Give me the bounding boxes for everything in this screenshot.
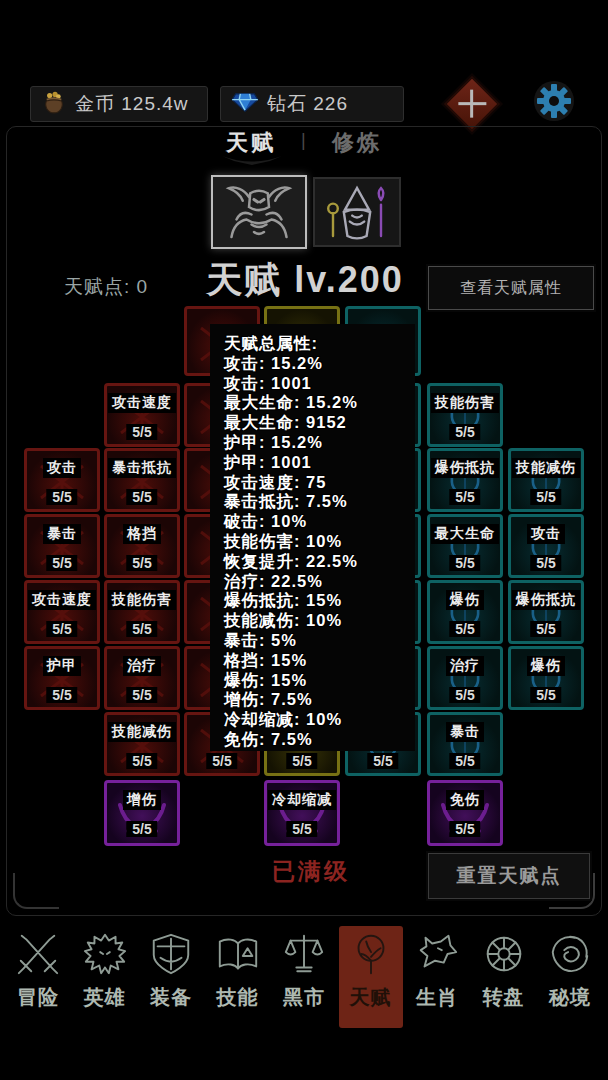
node-level: 5/5 — [449, 555, 480, 571]
node-level: 5/5 — [449, 424, 480, 440]
node-label: 爆伤抵抗 — [512, 590, 580, 610]
nav-item-装备[interactable]: 装备 — [139, 926, 203, 1028]
nav-item-label: 天赋 — [350, 984, 392, 1011]
node-level: 5/5 — [449, 621, 480, 637]
talent-node[interactable]: 技能伤害5/5 — [427, 383, 503, 447]
talent-node[interactable]: 爆伤5/5 — [508, 646, 584, 710]
max-level-text: 已满级 — [206, 856, 416, 887]
popup-stat-line: 攻击: 1001 — [224, 374, 415, 394]
popup-stat-line: 攻击速度: 75 — [224, 473, 415, 493]
popup-stat-line: 技能伤害: 10% — [224, 532, 415, 552]
talent-node[interactable]: 攻击5/5 — [24, 448, 100, 512]
talent-node[interactable]: 增伤5/5 — [104, 780, 180, 846]
node-level: 5/5 — [286, 821, 317, 837]
node-level: 5/5 — [449, 489, 480, 505]
node-level: 5/5 — [46, 687, 77, 703]
node-level: 5/5 — [206, 753, 237, 769]
popup-stat-line: 最大生命: 9152 — [224, 413, 415, 433]
node-level: 5/5 — [126, 424, 157, 440]
talent-node[interactable]: 护甲5/5 — [24, 646, 100, 710]
node-level: 5/5 — [286, 753, 317, 769]
node-level: 5/5 — [367, 753, 398, 769]
node-label: 治疗 — [446, 656, 484, 676]
talent-node[interactable]: 格挡5/5 — [104, 514, 180, 578]
popup-stat-line: 恢复提升: 22.5% — [224, 552, 415, 572]
nav-item-label: 冒险 — [17, 984, 59, 1011]
popup-stat-line: 格挡: 15% — [224, 651, 415, 671]
nav-item-技能[interactable]: 技能 — [206, 926, 270, 1028]
node-level: 5/5 — [46, 621, 77, 637]
node-label: 技能伤害 — [431, 393, 499, 413]
talent-node[interactable]: 暴击5/5 — [427, 712, 503, 776]
nav-item-label: 转盘 — [483, 984, 525, 1011]
nav-item-label: 生肖 — [416, 984, 458, 1011]
node-label: 暴击 — [446, 722, 484, 742]
node-label: 攻击 — [43, 458, 81, 478]
wolf-icon — [413, 930, 461, 978]
node-label: 攻击 — [527, 524, 565, 544]
node-label: 暴击抵抗 — [108, 458, 176, 478]
node-label: 最大生命 — [431, 524, 499, 544]
node-label: 攻击速度 — [108, 393, 176, 413]
spellbook-icon — [214, 930, 262, 978]
talent-node[interactable]: 技能减伤5/5 — [508, 448, 584, 512]
popup-stat-line: 增伤: 7.5% — [224, 690, 415, 710]
node-label: 爆伤 — [446, 590, 484, 610]
nav-item-label: 技能 — [217, 984, 259, 1011]
node-label: 技能减伤 — [512, 458, 580, 478]
talent-node[interactable]: 免伤5/5 — [427, 780, 503, 846]
bottom-nav: 冒险英雄装备技能黑市天赋生肖转盘秘境 — [0, 926, 608, 1034]
talent-node[interactable]: 暴击5/5 — [24, 514, 100, 578]
popup-stat-line: 护甲: 15.2% — [224, 433, 415, 453]
nav-item-生肖[interactable]: 生肖 — [405, 926, 469, 1028]
nav-item-黑市[interactable]: 黑市 — [272, 926, 336, 1028]
talent-attrs-popup[interactable]: 天赋总属性:攻击: 15.2%攻击: 1001最大生命: 15.2%最大生命: … — [210, 324, 415, 751]
popup-stat-line: 爆伤抵抗: 15% — [224, 591, 415, 611]
nav-item-冒险[interactable]: 冒险 — [6, 926, 70, 1028]
popup-stat-line: 技能减伤: 10% — [224, 611, 415, 631]
vortex-icon — [546, 930, 594, 978]
nav-item-转盘[interactable]: 转盘 — [472, 926, 536, 1028]
popup-stat-line: 最大生命: 15.2% — [224, 393, 415, 413]
popup-stat-line: 破击: 10% — [224, 512, 415, 532]
node-level: 5/5 — [449, 753, 480, 769]
node-label: 暴击 — [43, 524, 81, 544]
talent-node[interactable]: 攻击5/5 — [508, 514, 584, 578]
popup-stat-line: 治疗: 22.5% — [224, 572, 415, 592]
talent-node[interactable]: 治疗5/5 — [104, 646, 180, 710]
node-label: 技能伤害 — [108, 590, 176, 610]
node-label: 爆伤抵抗 — [431, 458, 499, 478]
nav-item-秘境[interactable]: 秘境 — [538, 926, 602, 1028]
nav-item-英雄[interactable]: 英雄 — [73, 926, 137, 1028]
nav-item-label: 黑市 — [283, 984, 325, 1011]
node-level: 5/5 — [126, 555, 157, 571]
popup-stat-line: 冷却缩减: 10% — [224, 710, 415, 730]
nav-item-label: 秘境 — [549, 984, 591, 1011]
talent-node[interactable]: 爆伤抵抗5/5 — [508, 580, 584, 644]
shield-icon — [147, 930, 195, 978]
node-level: 5/5 — [126, 753, 157, 769]
node-label: 冷却缩减 — [268, 790, 336, 810]
node-level: 5/5 — [530, 555, 561, 571]
talent-node[interactable]: 冷却缩减5/5 — [264, 780, 340, 846]
node-level: 5/5 — [530, 489, 561, 505]
popup-stat-line: 爆伤: 15% — [224, 671, 415, 691]
node-label: 护甲 — [43, 656, 81, 676]
talent-node[interactable]: 技能伤害5/5 — [104, 580, 180, 644]
node-level: 5/5 — [126, 489, 157, 505]
node-level: 5/5 — [126, 821, 157, 837]
talent-node[interactable]: 爆伤5/5 — [427, 580, 503, 644]
popup-stat-line: 天赋总属性: — [224, 334, 415, 354]
talent-node[interactable]: 最大生命5/5 — [427, 514, 503, 578]
node-label: 免伤 — [446, 790, 484, 810]
node-label: 治疗 — [123, 656, 161, 676]
dragon-head-icon — [81, 930, 129, 978]
popup-stat-line: 护甲: 1001 — [224, 453, 415, 473]
node-label: 爆伤 — [527, 656, 565, 676]
popup-stat-line: 攻击: 15.2% — [224, 354, 415, 374]
reset-talent-button[interactable]: 重置天赋点 — [428, 853, 590, 899]
node-level: 5/5 — [449, 687, 480, 703]
talent-node[interactable]: 攻击速度5/5 — [24, 580, 100, 644]
talent-node[interactable]: 爆伤抵抗5/5 — [427, 448, 503, 512]
talent-node[interactable]: 攻击速度5/5 — [104, 383, 180, 447]
node-label: 技能减伤 — [108, 722, 176, 742]
wheel-icon — [480, 930, 528, 978]
crossed-swords-icon — [14, 930, 62, 978]
node-label: 格挡 — [123, 524, 161, 544]
node-level: 5/5 — [449, 821, 480, 837]
node-level: 5/5 — [530, 687, 561, 703]
talent-node[interactable]: 治疗5/5 — [427, 646, 503, 710]
scales-icon — [280, 930, 328, 978]
popup-stat-line: 暴击抵抗: 7.5% — [224, 492, 415, 512]
popup-stat-line: 暴击: 5% — [224, 631, 415, 651]
talent-node[interactable]: 技能减伤5/5 — [104, 712, 180, 776]
node-level: 5/5 — [46, 555, 77, 571]
nav-item-label: 英雄 — [84, 984, 126, 1011]
node-label: 攻击速度 — [28, 590, 96, 610]
talent-tree-icon — [347, 930, 395, 978]
node-level: 5/5 — [530, 621, 561, 637]
node-label: 增伤 — [123, 790, 161, 810]
node-level: 5/5 — [46, 489, 77, 505]
node-level: 5/5 — [126, 687, 157, 703]
popup-stat-line: 免伤: 7.5% — [224, 730, 415, 750]
node-level: 5/5 — [126, 621, 157, 637]
nav-item-label: 装备 — [150, 984, 192, 1011]
nav-item-天赋[interactable]: 天赋 — [339, 926, 403, 1028]
talent-node[interactable]: 暴击抵抗5/5 — [104, 448, 180, 512]
